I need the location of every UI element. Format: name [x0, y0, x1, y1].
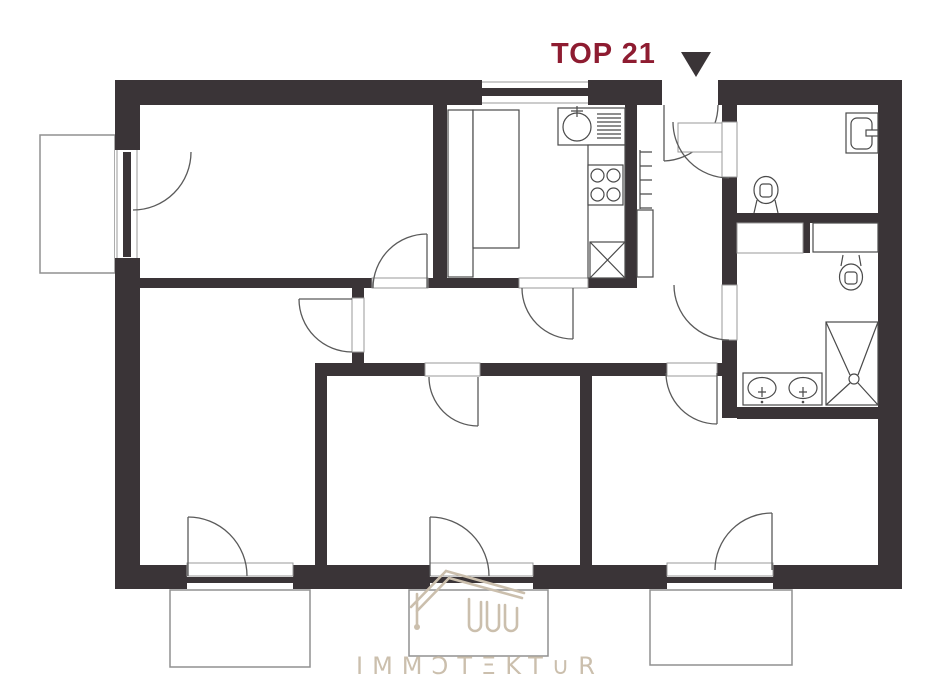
room-middle-door-threshold — [425, 363, 480, 376]
entrance-door-swing — [664, 105, 722, 161]
kitchen-door-swing — [522, 288, 573, 339]
bath-toilet-icon — [840, 255, 863, 290]
kitchen-window — [482, 80, 588, 105]
watermark-brand: IMMƆTΞKT∪R — [356, 652, 604, 680]
room-right-door-threshold — [667, 363, 717, 376]
balcony-left — [40, 135, 115, 273]
double-vanity-icon — [743, 373, 822, 405]
floor-plan-page: TOP 21 — [0, 0, 949, 683]
kitchen-fixtures — [448, 106, 653, 278]
refrigerator-x-icon — [590, 242, 625, 278]
storage-shelf-icon — [813, 223, 878, 252]
kitchen-cabinet-icon — [473, 110, 519, 248]
bedroom-door-threshold — [372, 278, 428, 288]
washbasin-icon — [846, 113, 878, 153]
storage-shelf-icon — [737, 223, 803, 253]
bathroom-door-swing — [674, 285, 729, 340]
kitchen-door-threshold — [519, 278, 588, 288]
balcony-bottom-middle — [409, 590, 548, 656]
room-middle-door-swing — [429, 377, 478, 426]
door-thresholds — [352, 122, 737, 376]
wc-fixtures — [754, 113, 878, 213]
entrance-opening — [662, 80, 718, 105]
down-triangle-icon — [681, 52, 711, 77]
radiator-icon — [637, 150, 653, 277]
room-left-door-threshold — [352, 298, 364, 352]
floor-plan-drawing — [0, 0, 949, 683]
wc-toilet-icon — [754, 177, 778, 214]
stove-4-burner-icon — [588, 165, 623, 205]
balcony-bottom-left — [170, 590, 310, 667]
french-door-bottom-left — [187, 517, 293, 589]
shower-icon — [826, 322, 878, 405]
bedroom-french-door — [115, 150, 191, 258]
french-door-bottom-right — [667, 513, 773, 589]
kitchen-cabinet-icon — [448, 110, 473, 277]
wc-door-threshold — [722, 122, 737, 177]
bathroom-door-threshold — [722, 285, 737, 340]
room-right-door-swing — [666, 373, 717, 424]
room-left-door-swing — [299, 299, 352, 352]
balcony-bottom-right — [650, 590, 792, 665]
french-door-bottom-middle — [430, 517, 533, 589]
drainboard-icon — [597, 114, 621, 138]
